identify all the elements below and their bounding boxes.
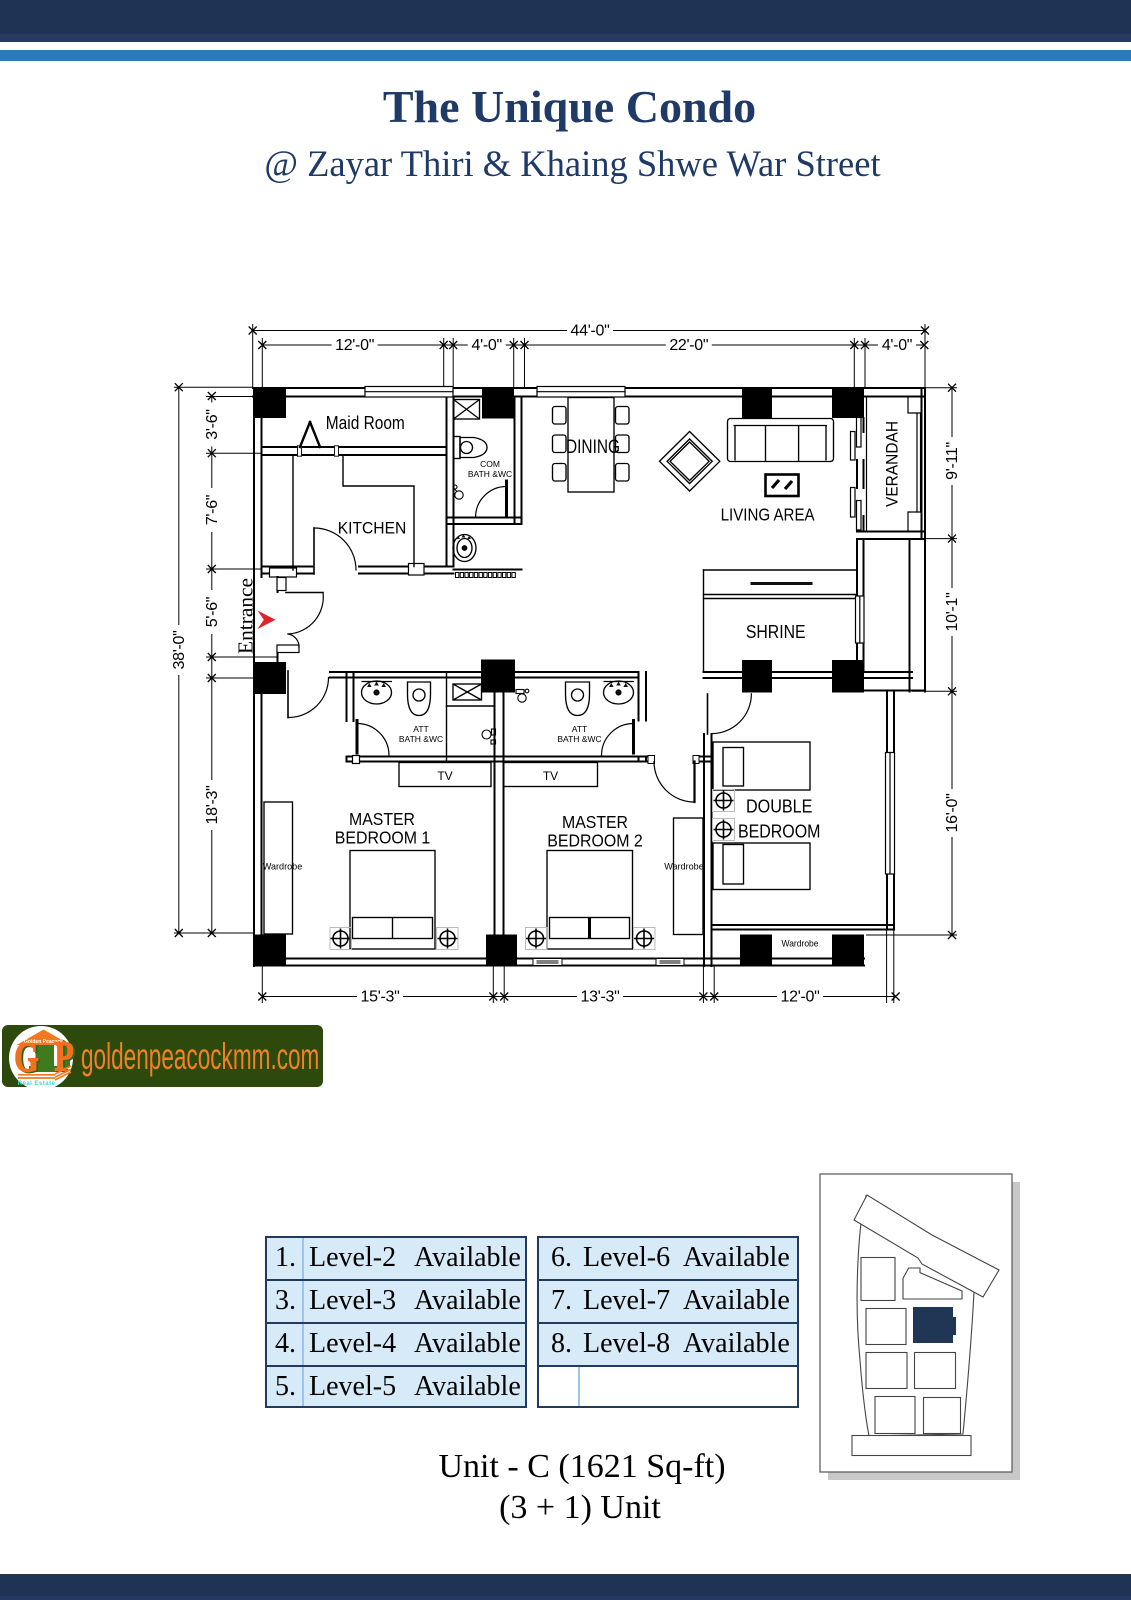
svg-text:Real Estate: Real Estate xyxy=(18,1080,56,1087)
svg-text:TV: TV xyxy=(543,769,558,783)
svg-text:BATH &WC: BATH &WC xyxy=(468,469,512,479)
svg-text:SHRINE: SHRINE xyxy=(746,621,806,642)
svg-text:12'-0": 12'-0" xyxy=(781,989,820,1006)
svg-text:4'-0": 4'-0" xyxy=(472,337,502,354)
svg-text:MASTER: MASTER xyxy=(562,812,628,832)
svg-text:12'-0": 12'-0" xyxy=(335,337,374,354)
svg-text:Entrance: Entrance xyxy=(234,578,258,654)
svg-text:BEDROOM 2: BEDROOM 2 xyxy=(547,830,643,850)
svg-text:7'-6": 7'-6" xyxy=(204,495,221,525)
svg-text:13'-3": 13'-3" xyxy=(581,989,620,1006)
svg-text:Wardrobe: Wardrobe xyxy=(263,862,303,873)
svg-text:ATT: ATT xyxy=(413,724,428,734)
svg-text:KITCHEN: KITCHEN xyxy=(338,518,407,537)
svg-text:15'-3": 15'-3" xyxy=(361,989,400,1006)
svg-text:44'-0": 44'-0" xyxy=(571,323,610,340)
svg-text:DOUBLE: DOUBLE xyxy=(746,795,813,816)
svg-text:9'-11": 9'-11" xyxy=(944,442,961,480)
svg-text:BEDROOM: BEDROOM xyxy=(738,821,821,842)
svg-text:Wardrobe: Wardrobe xyxy=(664,862,704,873)
svg-text:3'-6": 3'-6" xyxy=(204,409,221,439)
svg-text:BATH &WC: BATH &WC xyxy=(557,734,601,744)
svg-text:TV: TV xyxy=(437,769,452,783)
svg-text:COM: COM xyxy=(480,459,500,469)
svg-text:DINING: DINING xyxy=(566,437,620,458)
svg-text:BATH &WC: BATH &WC xyxy=(399,734,443,744)
svg-text:BEDROOM 1: BEDROOM 1 xyxy=(335,828,431,848)
svg-text:Wardrobe: Wardrobe xyxy=(782,939,819,950)
svg-text:5'-6": 5'-6" xyxy=(204,597,221,627)
svg-text:VERANDAH: VERANDAH xyxy=(884,421,902,507)
svg-text:22'-0": 22'-0" xyxy=(669,337,708,354)
svg-text:LIVING AREA: LIVING AREA xyxy=(721,504,815,524)
svg-text:Maid Room: Maid Room xyxy=(326,413,405,433)
svg-text:18'-3": 18'-3" xyxy=(204,786,221,825)
svg-text:ATT: ATT xyxy=(572,724,587,734)
svg-text:16'-0": 16'-0" xyxy=(944,794,961,833)
svg-text:MASTER: MASTER xyxy=(349,809,415,829)
svg-text:10'-1": 10'-1" xyxy=(944,593,961,632)
svg-text:4'-0": 4'-0" xyxy=(882,337,912,354)
svg-text:38'-0": 38'-0" xyxy=(171,631,188,670)
